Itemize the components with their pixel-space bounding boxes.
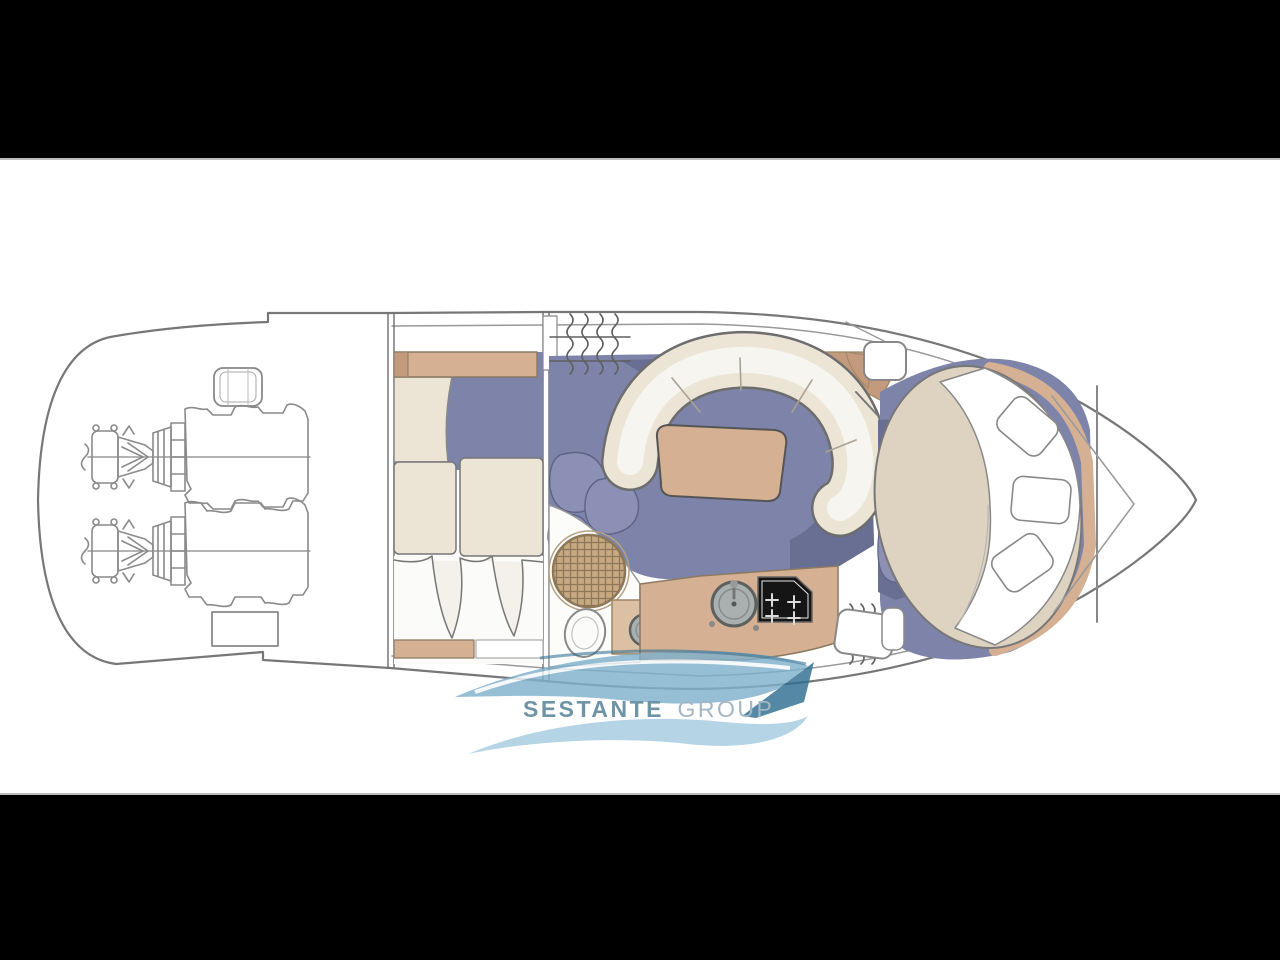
galley-stove-icon bbox=[758, 577, 812, 624]
brand-text: SESTANTE GROUP bbox=[523, 696, 774, 722]
brand-name: SESTANTE bbox=[523, 696, 664, 722]
port-window bbox=[864, 342, 906, 380]
aft-cabin bbox=[394, 352, 543, 664]
dinette-table bbox=[657, 425, 786, 501]
brand-suffix: GROUP bbox=[677, 696, 774, 722]
galley bbox=[640, 566, 838, 660]
starboard-locker bbox=[882, 608, 904, 650]
aft-berth-cushion-right bbox=[460, 458, 543, 556]
aft-cabin-shelf bbox=[394, 352, 537, 377]
boat-floorplan bbox=[38, 312, 1196, 689]
screenshot-stage: SESTANTE GROUP bbox=[0, 0, 1280, 960]
aft-berth-cushion-left bbox=[394, 462, 456, 554]
aft-cabin-baseboard bbox=[394, 640, 474, 658]
bed-pillow bbox=[1010, 476, 1072, 525]
aft-cabin-step bbox=[476, 640, 543, 658]
aft-cabin-seatback bbox=[394, 377, 452, 462]
yacht-floorplan-image: SESTANTE GROUP bbox=[0, 0, 1280, 960]
aft-cabin-shelf-end bbox=[394, 352, 408, 377]
shower-grate-icon bbox=[553, 535, 625, 607]
